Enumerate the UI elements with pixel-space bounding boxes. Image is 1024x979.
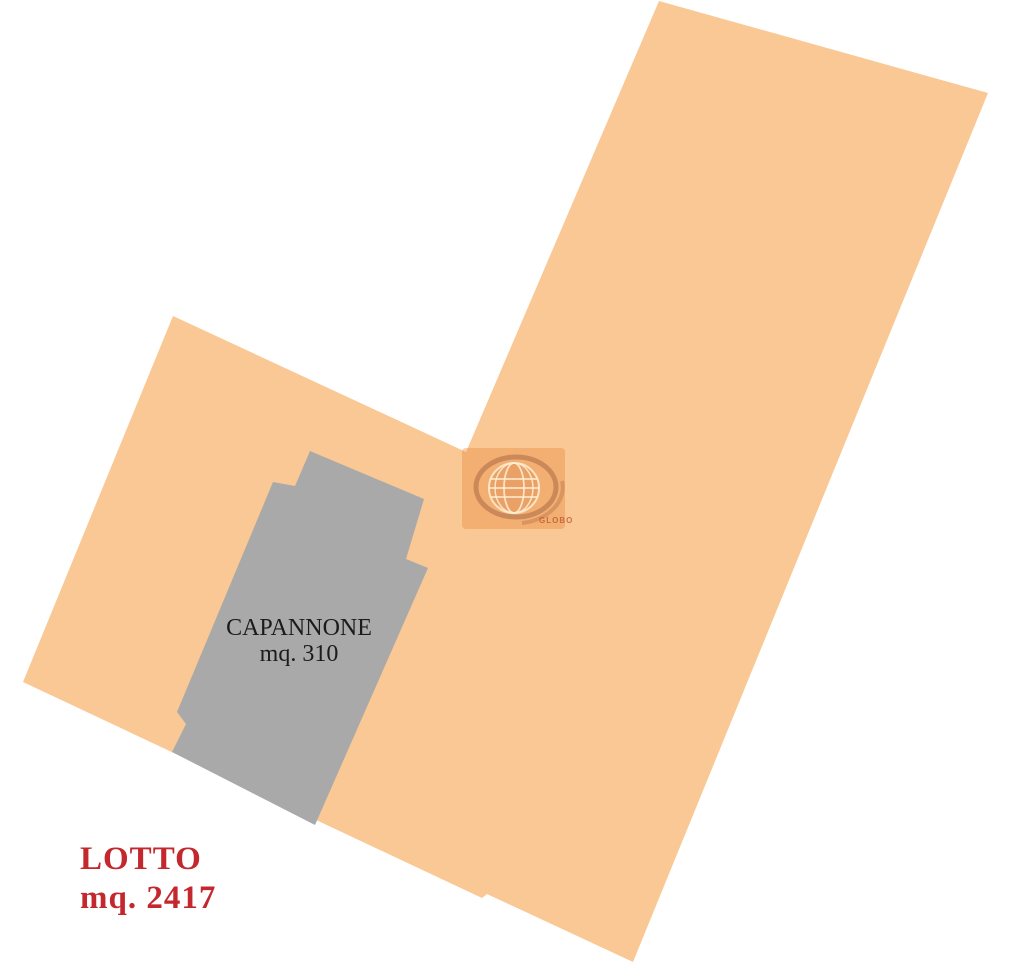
lot-label: LOTTO mq. 2417 <box>80 840 216 918</box>
watermark-brand-text: GLOBO <box>539 516 573 525</box>
building-name: CAPANNONE <box>226 615 372 641</box>
site-plan: GLOBO CAPANNONE mq. 310 LOTTO mq. 2417 <box>0 0 1024 979</box>
lot-area: mq. 2417 <box>80 879 216 918</box>
building-area: mq. 310 <box>226 641 372 667</box>
globo-watermark-logo: GLOBO <box>462 448 573 529</box>
site-plan-canvas: GLOBO <box>0 0 1024 979</box>
building-label: CAPANNONE mq. 310 <box>226 615 372 667</box>
lot-name: LOTTO <box>80 840 216 879</box>
